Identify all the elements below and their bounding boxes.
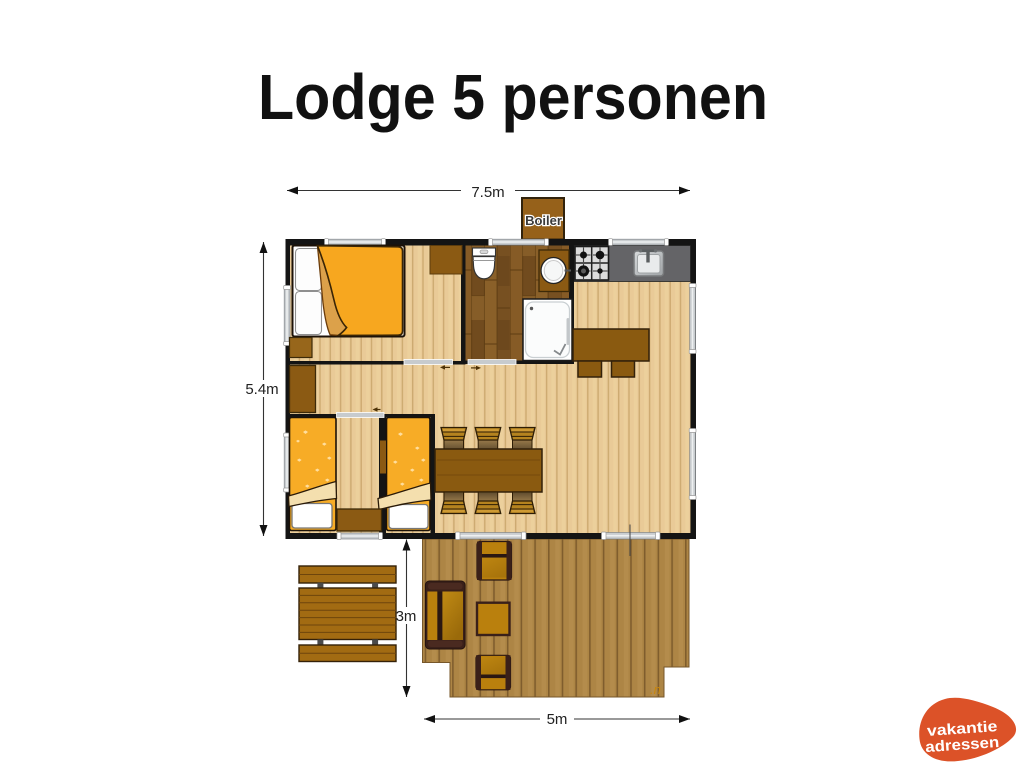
svg-text:.n: .n: [650, 682, 661, 697]
svg-text:5.4m: 5.4m: [245, 381, 278, 398]
svg-text:5m: 5m: [547, 711, 568, 728]
svg-text:7.5m: 7.5m: [471, 184, 504, 201]
svg-text:Boiler: Boiler: [525, 213, 562, 228]
svg-text:3m: 3m: [396, 608, 417, 625]
svg-text:Lodge 5 personen: Lodge 5 personen: [258, 61, 768, 133]
